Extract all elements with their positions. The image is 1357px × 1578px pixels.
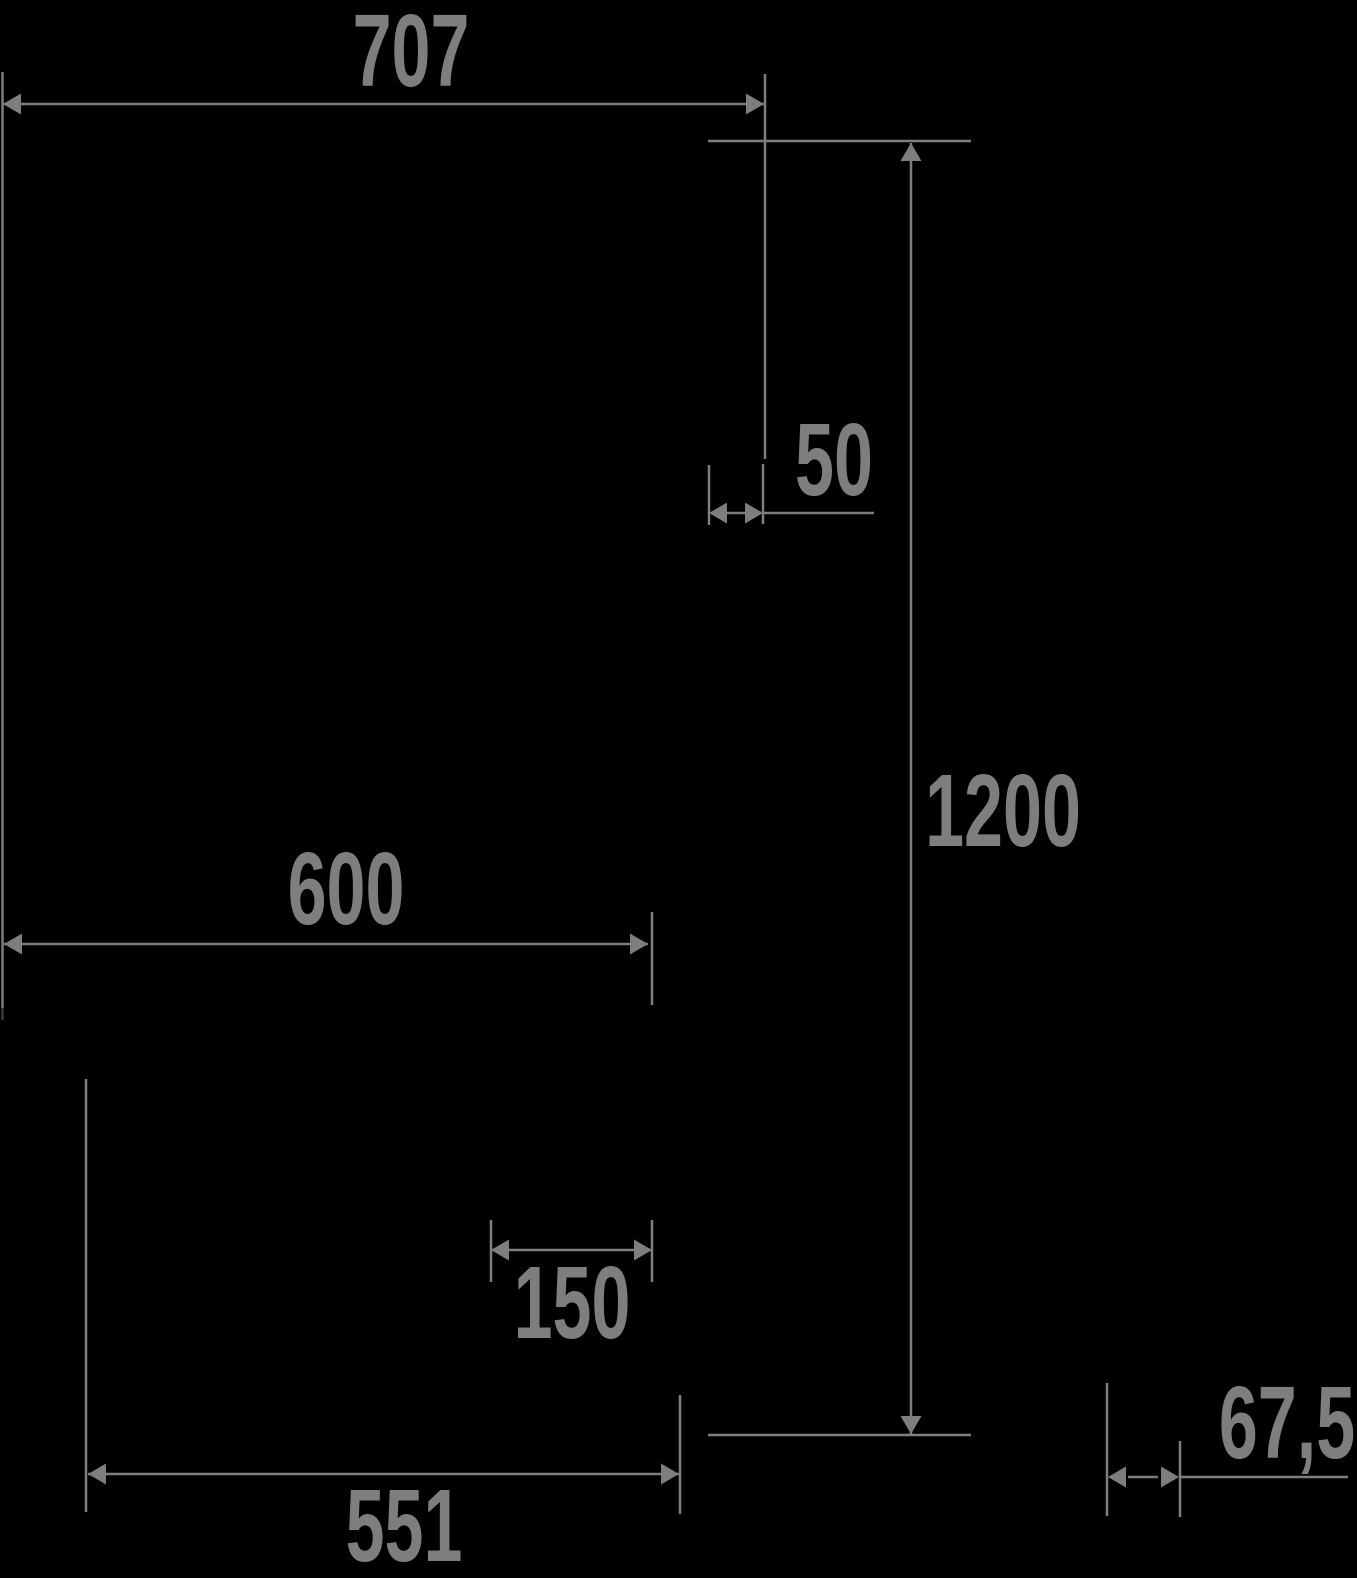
svg-text:1200: 1200 bbox=[925, 752, 1081, 868]
svg-text:600: 600 bbox=[288, 830, 405, 946]
svg-text:150: 150 bbox=[514, 1244, 631, 1360]
svg-text:50: 50 bbox=[795, 401, 873, 517]
svg-text:707: 707 bbox=[353, 0, 470, 108]
svg-text:67,5: 67,5 bbox=[1219, 1364, 1355, 1480]
svg-text:551: 551 bbox=[346, 1467, 463, 1578]
